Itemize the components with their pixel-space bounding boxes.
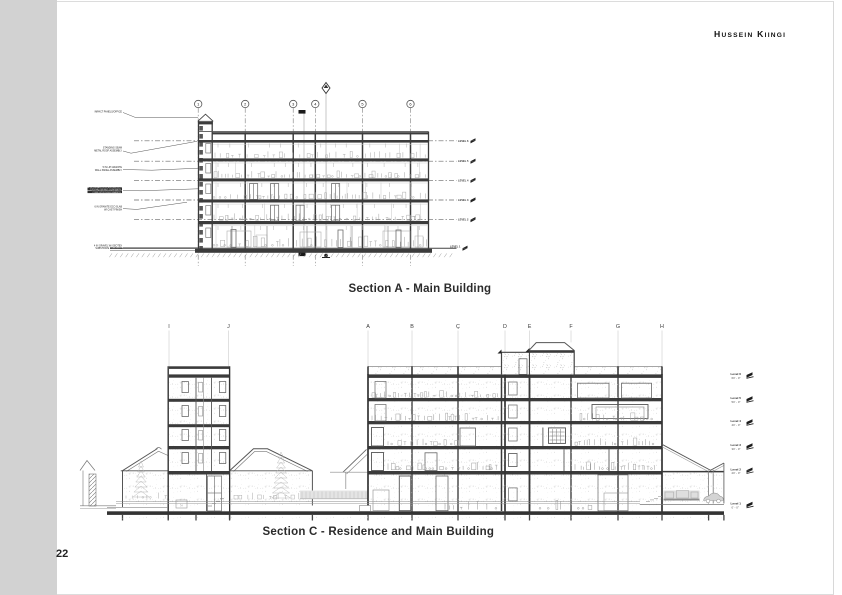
svg-text:LEVEL 4: LEVEL 4: [458, 178, 469, 182]
svg-text:Section C - Residence and Main: Section C - Residence and Main Building: [263, 526, 495, 538]
svg-text:G: G: [616, 324, 620, 330]
svg-text:4 IN GRAVEL W/ GEOTEX: 4 IN GRAVEL W/ GEOTEX: [94, 244, 122, 247]
svg-text:A: A: [366, 324, 370, 330]
svg-text:E: E: [528, 324, 532, 330]
svg-text:TYPICAL OFFSET CONCRETE: TYPICAL OFFSET CONCRETE: [90, 188, 122, 191]
svg-text:LEVEL 1: LEVEL 1: [450, 244, 461, 248]
svg-text:LEVEL 6: LEVEL 6: [458, 139, 469, 143]
svg-text:60' - 0": 60' - 0": [732, 376, 741, 380]
svg-text:3: 3: [292, 102, 294, 107]
svg-text:H: H: [660, 324, 664, 330]
svg-text:WALL PANEL ASSEMBLY: WALL PANEL ASSEMBLY: [95, 169, 123, 172]
svg-text:20' - 0": 20' - 0": [732, 471, 741, 475]
svg-text:50' - 0": 50' - 0": [732, 400, 741, 404]
svg-text:6: 6: [409, 102, 411, 107]
svg-text:40' - 0": 40' - 0": [732, 423, 741, 427]
svg-text:D: D: [503, 324, 507, 330]
svg-text:30' - 0": 30' - 0": [732, 447, 741, 451]
svg-text:SUBSTRATE DRAINAGE: SUBSTRATE DRAINAGE: [95, 247, 122, 250]
svg-text:LEVEL 5: LEVEL 5: [458, 159, 469, 163]
svg-text:J: J: [227, 324, 230, 330]
svg-text:1: 1: [197, 102, 199, 107]
svg-text:5 IN LIP GRANITE: 5 IN LIP GRANITE: [103, 166, 123, 169]
svg-text:Ç: Ç: [456, 324, 460, 330]
svg-text:IMPACT PANELS/OFFICE: IMPACT PANELS/OFFICE: [95, 111, 123, 114]
svg-text:5: 5: [361, 102, 363, 107]
svg-text:0' - 0": 0' - 0": [732, 505, 739, 509]
svg-text:F: F: [569, 324, 573, 330]
svg-text:STANDING SEAM: STANDING SEAM: [103, 147, 122, 150]
svg-text:METAL ROOF ASSEMBLY: METAL ROOF ASSEMBLY: [94, 149, 122, 152]
svg-text:I: I: [168, 324, 170, 330]
svg-text:Section A - Main Building: Section A - Main Building: [349, 283, 492, 295]
svg-text:B: B: [410, 324, 414, 330]
svg-text:LEVEL 2: LEVEL 2: [458, 218, 469, 222]
svg-text:6 IN GRANITE ECO SLAB: 6 IN GRANITE ECO SLAB: [94, 206, 122, 209]
svg-text:CORE W/ ROUGH GRANITE: CORE W/ ROUGH GRANITE: [92, 191, 121, 194]
svg-text:2: 2: [244, 102, 246, 107]
svg-text:LEVEL 3: LEVEL 3: [458, 198, 469, 202]
svg-text:W/ CAST FINISH: W/ CAST FINISH: [104, 208, 122, 211]
